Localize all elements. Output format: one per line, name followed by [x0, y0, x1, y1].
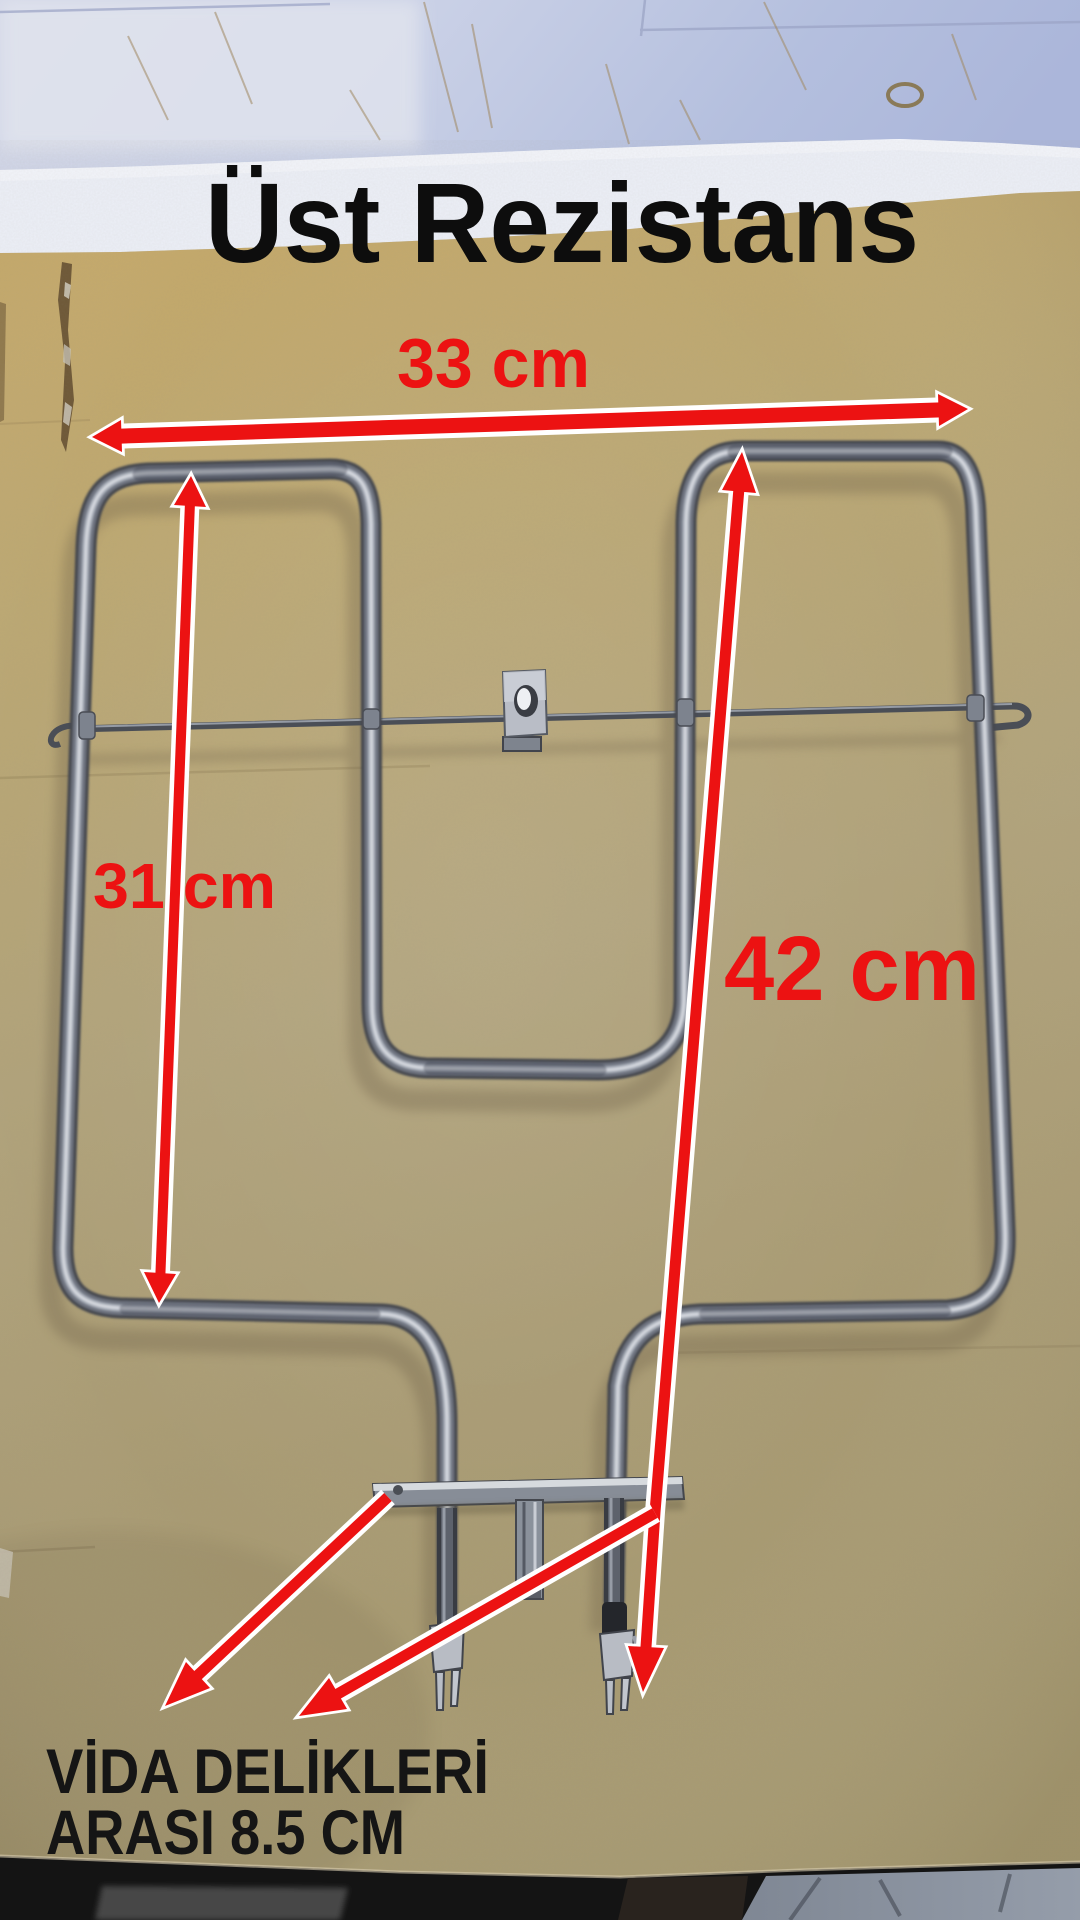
svg-text:42 cm: 42 cm	[724, 918, 980, 1020]
svg-text:Üst Rezistans: Üst Rezistans	[205, 160, 919, 286]
svg-text:31 cm: 31 cm	[93, 850, 276, 922]
svg-text:VİDA DELİKLERİ: VİDA DELİKLERİ	[46, 1737, 489, 1807]
svg-text:33 cm: 33 cm	[397, 324, 590, 402]
svg-text:ARASI 8.5 CM: ARASI 8.5 CM	[46, 1798, 405, 1868]
